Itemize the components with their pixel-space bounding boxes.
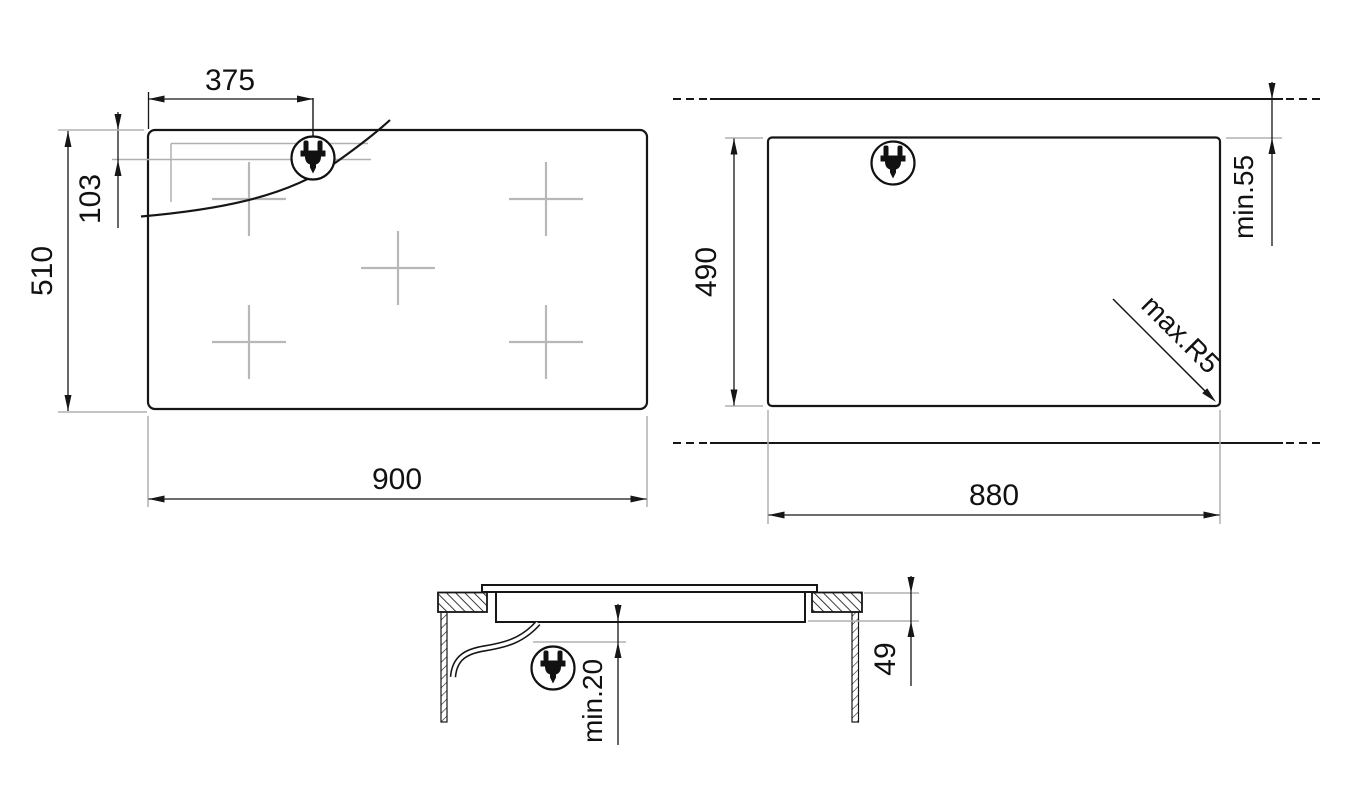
dim-label: min.20	[577, 659, 608, 743]
burner-cross	[509, 162, 583, 236]
power-cable	[453, 623, 538, 677]
hob-body	[496, 592, 805, 622]
cabinet-wall-right	[852, 612, 859, 722]
arrowhead	[615, 642, 622, 658]
dim-plan-width: 900	[148, 416, 647, 507]
plug-icon	[532, 647, 575, 690]
dim-label: 510	[26, 246, 59, 296]
dim-cutout-height: 490	[690, 138, 763, 406]
arrowhead	[1204, 512, 1220, 519]
dim-label: min.55	[1228, 155, 1259, 239]
worktop-section-right	[812, 593, 862, 613]
dim-label: 880	[969, 479, 1019, 512]
cutout-view: 490 min.55 max.R5 880	[673, 82, 1323, 524]
arrowhead	[731, 139, 738, 155]
dim-label: 375	[205, 64, 255, 97]
installation-diagram: 375 103 510 900	[0, 0, 1350, 800]
arrowhead	[1269, 138, 1276, 154]
arrowhead	[297, 96, 313, 103]
arrowhead	[115, 160, 122, 176]
dim-label: 490	[690, 247, 723, 297]
cable-outer	[453, 623, 538, 677]
cabinet-wall-left	[441, 612, 447, 722]
burner-cross	[509, 305, 583, 379]
burner-cross	[212, 305, 286, 379]
plug-icon	[292, 137, 335, 180]
arrowhead	[149, 496, 165, 503]
plan-view: 375 103 510 900	[26, 64, 647, 507]
arrowhead	[115, 114, 122, 130]
burner-cross	[361, 231, 435, 305]
arrowhead	[1269, 83, 1276, 99]
dim-label: 900	[372, 463, 422, 496]
installation-diagram-page: 375 103 510 900	[0, 0, 1350, 800]
arrowhead	[65, 131, 72, 147]
arrowhead	[149, 96, 165, 103]
arrowhead	[631, 496, 647, 503]
dim-cutout-width: 880	[768, 410, 1220, 524]
plug-icon	[872, 142, 915, 185]
dim-label: 103	[74, 174, 107, 224]
dim-plug-offset-x: 375	[149, 64, 314, 129]
arrowhead	[908, 621, 915, 637]
arrowhead	[769, 512, 785, 519]
arrowhead	[731, 390, 738, 406]
dim-rear-clearance: min.55	[1226, 82, 1282, 246]
arrowhead	[65, 395, 72, 411]
dim-plan-height: 510	[26, 130, 147, 412]
arrowhead	[908, 577, 915, 593]
section-view: min.20 49	[438, 576, 919, 745]
cutout-outline	[768, 138, 1220, 407]
cable-curve	[141, 120, 390, 217]
dim-label: 49	[869, 642, 902, 675]
glass-top	[482, 585, 817, 592]
worktop-section-left	[438, 593, 487, 613]
